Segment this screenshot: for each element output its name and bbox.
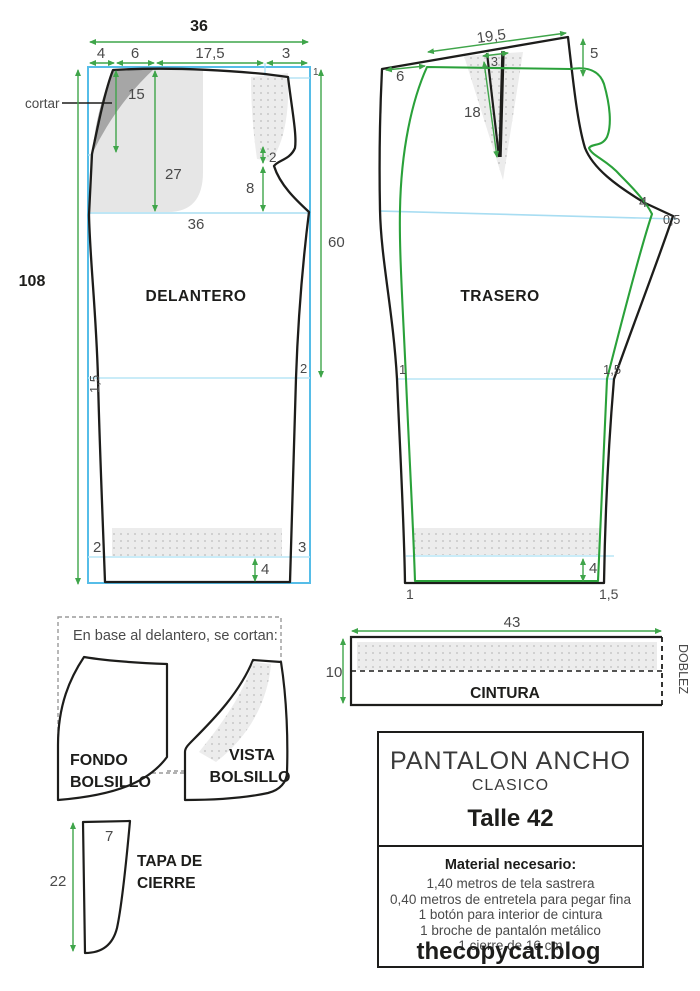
material-item: 0,40 metros de entretela para pegar fina — [383, 892, 638, 908]
material-item: 1 broche de pantalón metálico — [383, 923, 638, 939]
trasero-piece: 19,5 5 3 6 18 4 0,5 1 1,5 4 1 1,5 TRASER… — [380, 26, 681, 602]
measure-fly-top: 2 — [269, 150, 277, 165]
pattern-size: Talle 42 — [385, 805, 636, 833]
measure-back-knee-left: 1 — [399, 362, 406, 377]
measure-hip-width: 36 — [188, 216, 205, 233]
measure-tapa-width: 7 — [105, 828, 113, 845]
cintura-title: CINTURA — [470, 685, 540, 702]
measure-dart-depth: 15 — [128, 86, 145, 103]
delantero-piece: 36 4 6 17,5 3 108 cortar 15 27 36 2 8 1 … — [19, 18, 345, 584]
measure-back-waist: 19,5 — [476, 26, 507, 47]
measure-knee-left: 1,5 — [87, 375, 102, 393]
vista-label-1: VISTA — [229, 747, 275, 764]
measure-hem-fold: 4 — [261, 561, 269, 578]
sewing-pattern-sheet: 36 4 6 17,5 3 108 cortar 15 27 36 2 8 1 … — [0, 0, 700, 991]
measure-dart-width: 3 — [491, 55, 498, 69]
measure-back-hem-left: 1 — [406, 586, 414, 602]
measure-back-hem-right: 1,5 — [599, 586, 619, 602]
fondo-label-2: BOLSILLO — [70, 774, 151, 791]
measure-back-hem-fold: 4 — [589, 560, 597, 577]
fondo-label-1: FONDO — [70, 752, 128, 769]
measure-hem-right: 3 — [298, 539, 306, 556]
measure-crotch-drop: 0,5 — [663, 213, 680, 227]
hem-dotted-band — [112, 528, 282, 556]
measure-seg-b: 6 — [131, 45, 139, 62]
measure-fly-len: 8 — [246, 180, 254, 197]
tapa-label-1: TAPA DE — [137, 853, 202, 870]
measure-hem-left: 2 — [93, 539, 101, 556]
measure-cintura-width: 43 — [504, 614, 521, 631]
info-box-header: PANTALON ANCHO CLASICO Talle 42 — [379, 733, 642, 847]
hem-dotted-band-back — [414, 528, 600, 555]
measure-total-width: 36 — [190, 18, 208, 35]
measure-seg-a: 4 — [97, 45, 105, 62]
measure-pocket-depth: 27 — [165, 166, 182, 183]
measure-side-offset: 6 — [396, 68, 404, 85]
measure-cintura-height: 10 — [326, 664, 343, 681]
materials-title: Material necesario: — [383, 857, 638, 873]
pocket-note: En base al delantero, se cortan: — [73, 628, 278, 644]
trasero-title: TRASERO — [460, 288, 539, 305]
site-credit: thecopycat.blog — [377, 938, 640, 966]
delantero-overlay-outline — [400, 67, 652, 581]
doblez-label: DOBLEZ — [676, 644, 690, 694]
measure-rise-ext: 5 — [590, 45, 598, 62]
measure-seg-c: 17,5 — [195, 45, 224, 62]
cortar-label: cortar — [25, 96, 60, 111]
hip-guide-back — [380, 211, 677, 219]
tapa-label-2: CIERRE — [137, 875, 196, 892]
measure-knee-right: 2 — [300, 361, 307, 376]
vista-label-2: BOLSILLO — [210, 769, 291, 786]
pattern-info-box: PANTALON ANCHO CLASICO Talle 42 Material… — [377, 731, 644, 968]
material-item: 1 botón para interior de cintura — [383, 907, 638, 923]
measure-crotch-ext: 4 — [639, 194, 647, 211]
delantero-title: DELANTERO — [146, 288, 247, 305]
cintura-dotted-band — [357, 642, 657, 670]
pattern-subtitle: CLASICO — [385, 777, 636, 795]
measure-side-len: 60 — [328, 234, 345, 251]
measure-height: 108 — [19, 273, 46, 290]
pattern-title: PANTALON ANCHO — [385, 747, 636, 776]
measure-back-knee-right: 1,5 — [603, 362, 621, 377]
measure-seg-d: 3 — [282, 45, 290, 62]
pocket-pieces: En base al delantero, se cortan: FONDO B… — [50, 617, 291, 953]
fly-facing-dotted — [251, 73, 288, 161]
measure-tapa-height: 22 — [50, 873, 67, 890]
trasero-outline — [380, 37, 673, 583]
measure-dart-len: 18 — [464, 104, 481, 121]
cintura-piece: 43 10 CINTURA DOBLEZ — [326, 614, 690, 705]
material-item: 1,40 metros de tela sastrera — [383, 876, 638, 892]
measure-cf-drop: 1 — [313, 67, 319, 78]
